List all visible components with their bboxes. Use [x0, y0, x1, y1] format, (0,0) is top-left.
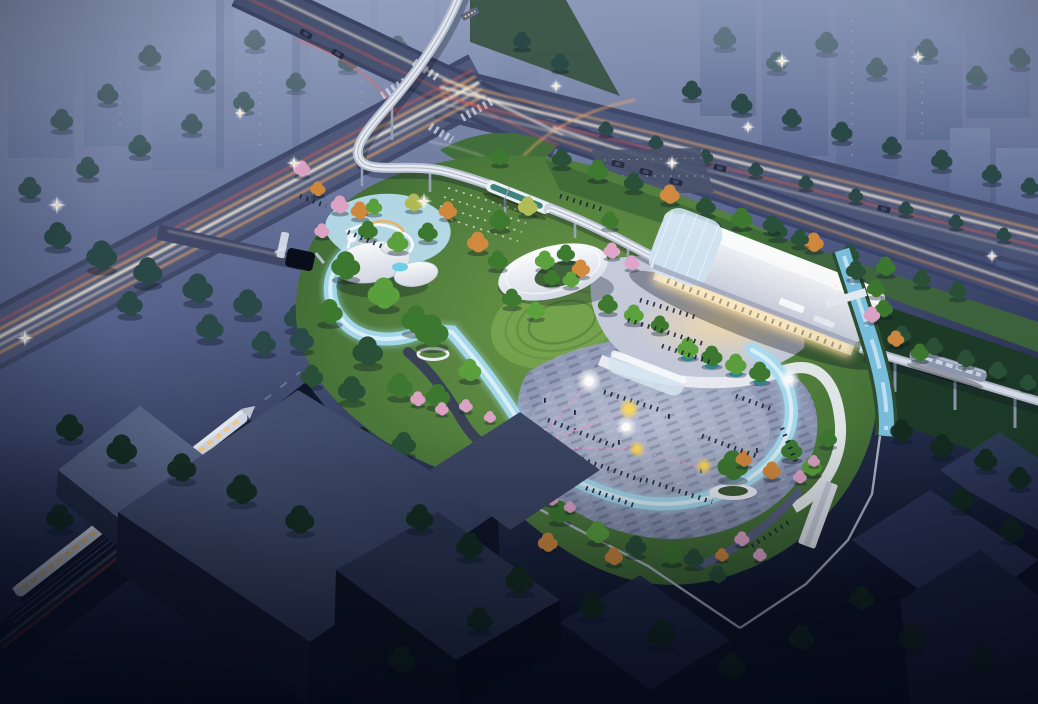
vignette	[0, 0, 1038, 704]
rendering-canvas	[0, 0, 1038, 704]
aerial-park-rendering	[0, 0, 1038, 704]
